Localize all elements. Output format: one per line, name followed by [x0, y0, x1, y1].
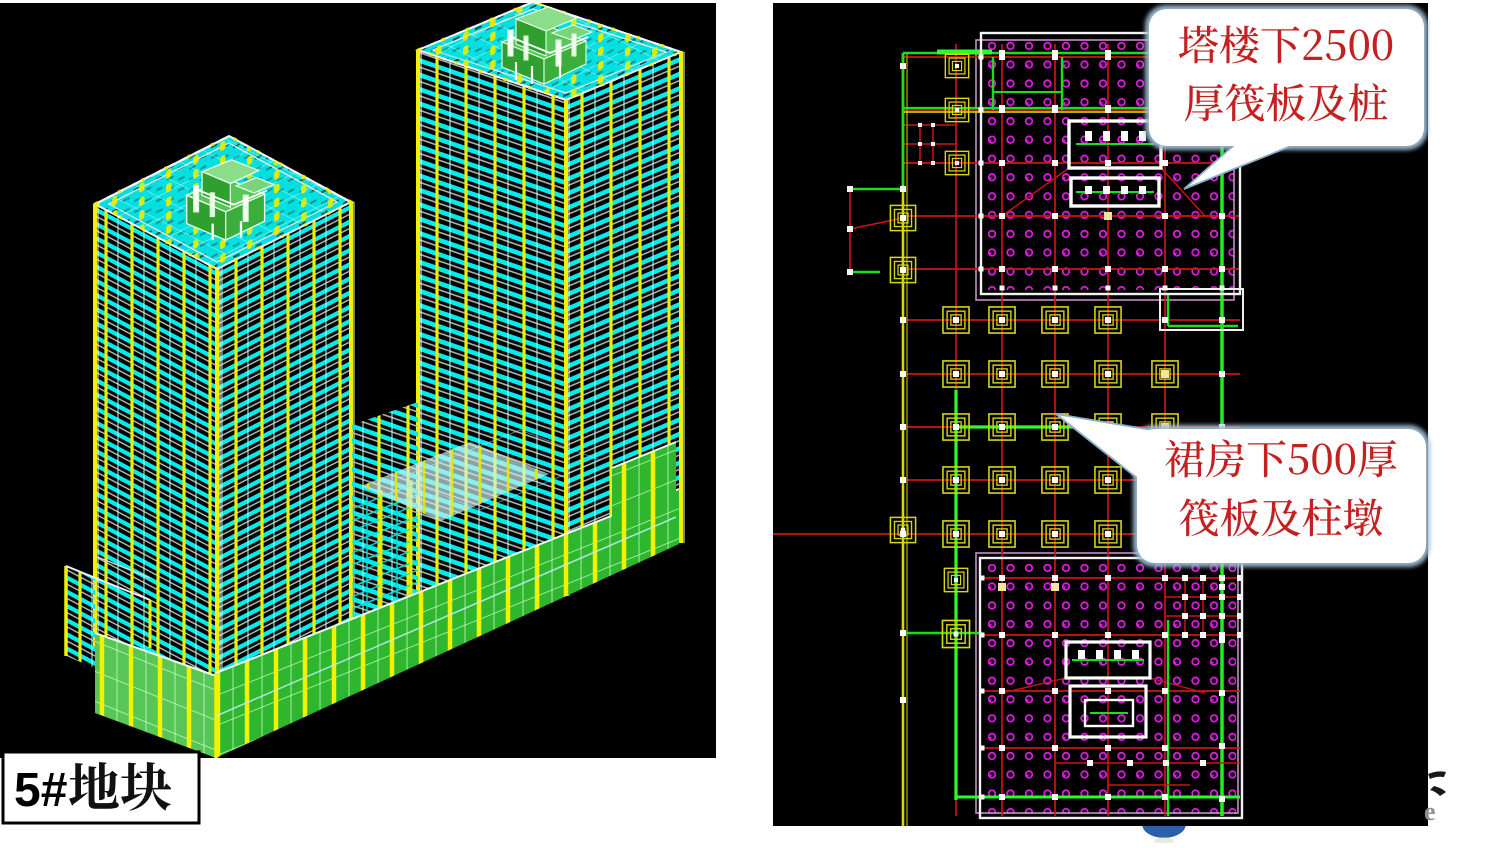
svg-text:e: e: [1424, 797, 1436, 826]
svg-text:5#: 5#: [14, 764, 67, 817]
